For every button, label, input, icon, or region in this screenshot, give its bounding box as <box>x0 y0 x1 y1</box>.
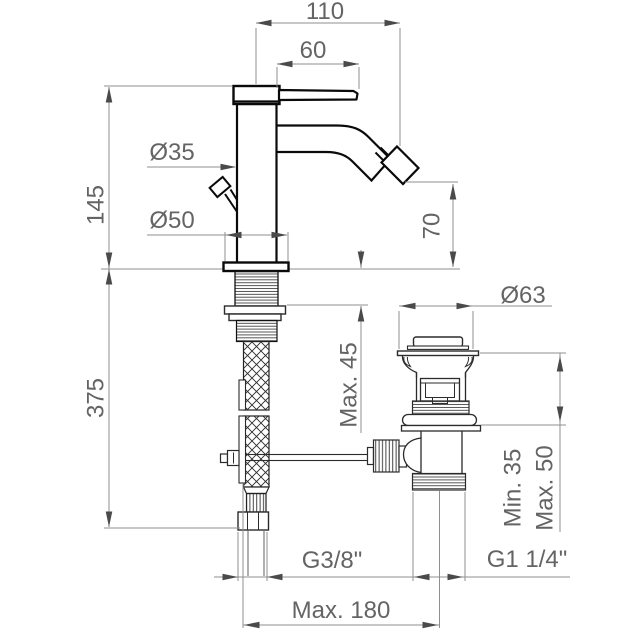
shank-thread-lower <box>237 321 278 342</box>
rod-connector-washer <box>368 448 374 465</box>
dim-body-diameter-label: Ø35 <box>149 139 194 166</box>
waste-tailpiece-thread <box>413 474 466 491</box>
dim-body-height-label: 145 <box>83 185 110 225</box>
waste-lower-flange <box>402 426 481 432</box>
dim-waste-max-deck-label: Max. 50 <box>532 445 559 530</box>
waste-olive-nut <box>403 415 477 426</box>
lift-rod-lower <box>239 416 246 483</box>
dim-max-deck-thickness-label: Max. 45 <box>336 342 363 427</box>
supply-hose-lower <box>244 416 270 487</box>
base-plate <box>224 263 289 272</box>
bidet-mixer-dimension-drawing: 110 60 145 375 Ø35 Ø50 70 Ø63 Max. 45 Mi… <box>0 0 640 640</box>
technical-drawing-canvas: 110 60 145 375 Ø35 Ø50 70 Ø63 Max. 45 Mi… <box>0 0 640 640</box>
waste-plug-cap <box>414 337 463 347</box>
supply-hose-upper <box>244 342 270 411</box>
rod-connector-knurl <box>374 440 400 472</box>
dim-installation-depth-label: 375 <box>83 378 110 418</box>
hose-taper <box>244 487 270 494</box>
mounting-shank-thread <box>235 272 278 307</box>
lift-rod-upper <box>239 380 246 410</box>
dim-waste-connection-label: G1 1/4" <box>487 546 568 573</box>
dim-spout-reach-label: 110 <box>306 0 344 25</box>
mounting-nut <box>229 314 281 321</box>
dim-waste-min-deck-label: Min. 35 <box>500 449 527 528</box>
faucet-body <box>237 104 277 264</box>
mounting-nut-flange <box>225 306 286 314</box>
rod-end-cap <box>221 454 228 463</box>
dim-handle-length-label: 60 <box>300 37 327 64</box>
dim-supply-connection-label: G3/8" <box>302 547 363 574</box>
lever-handle <box>279 90 358 100</box>
dim-spout-height-label: 70 <box>419 213 446 240</box>
dim-base-diameter-label: Ø50 <box>149 207 194 234</box>
waste-flange <box>398 351 479 356</box>
waste-thread-upper <box>413 401 470 415</box>
dim-waste-flange-diameter-label: Ø63 <box>500 282 545 309</box>
waste-plug-plate <box>408 346 469 349</box>
hose-ferrule <box>247 494 267 513</box>
dim-max-center-distance-label: Max. 180 <box>292 597 391 624</box>
